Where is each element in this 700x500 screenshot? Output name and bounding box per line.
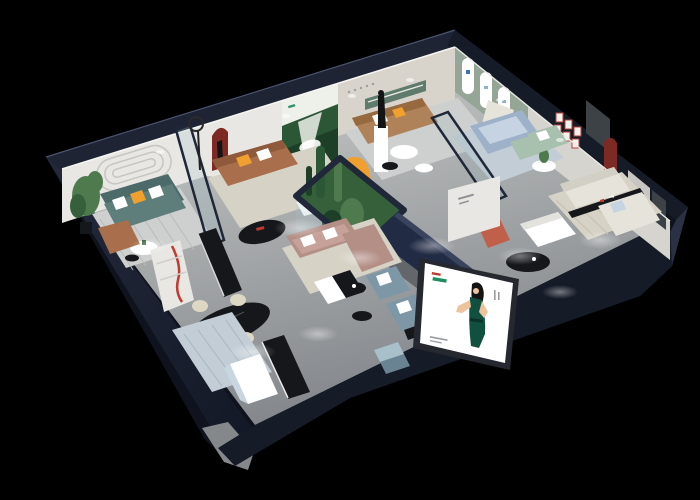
- black-side-table: [352, 311, 372, 321]
- showroom-render: [0, 0, 700, 500]
- model-face: [473, 288, 479, 294]
